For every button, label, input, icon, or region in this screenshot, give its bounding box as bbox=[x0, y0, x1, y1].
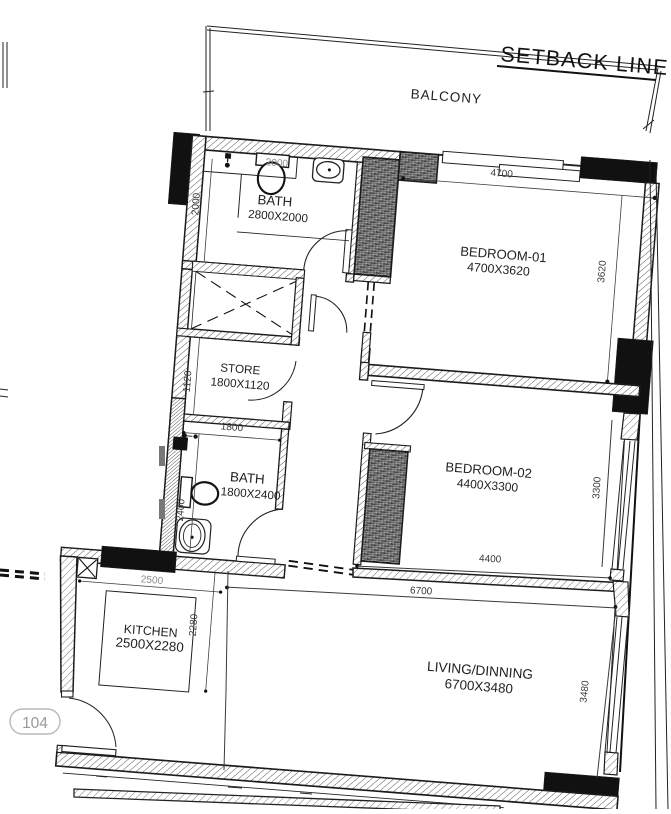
svg-text:4400: 4400 bbox=[479, 553, 502, 565]
svg-text:2000: 2000 bbox=[190, 192, 203, 216]
svg-text:2500: 2500 bbox=[140, 574, 164, 587]
svg-text:104: 104 bbox=[22, 715, 48, 732]
svg-text:2400: 2400 bbox=[175, 498, 188, 522]
svg-text:3620: 3620 bbox=[596, 260, 609, 284]
svg-text:6700: 6700 bbox=[410, 585, 433, 597]
svg-text:1120: 1120 bbox=[182, 370, 195, 393]
svg-text:2280: 2280 bbox=[188, 613, 201, 637]
svg-text:4700: 4700 bbox=[490, 168, 514, 181]
svg-text:BATH: BATH bbox=[257, 192, 293, 210]
svg-text:1800: 1800 bbox=[220, 421, 244, 434]
svg-text:BATH: BATH bbox=[230, 469, 266, 487]
svg-text:3300: 3300 bbox=[591, 476, 604, 499]
svg-text:2000: 2000 bbox=[265, 157, 289, 170]
